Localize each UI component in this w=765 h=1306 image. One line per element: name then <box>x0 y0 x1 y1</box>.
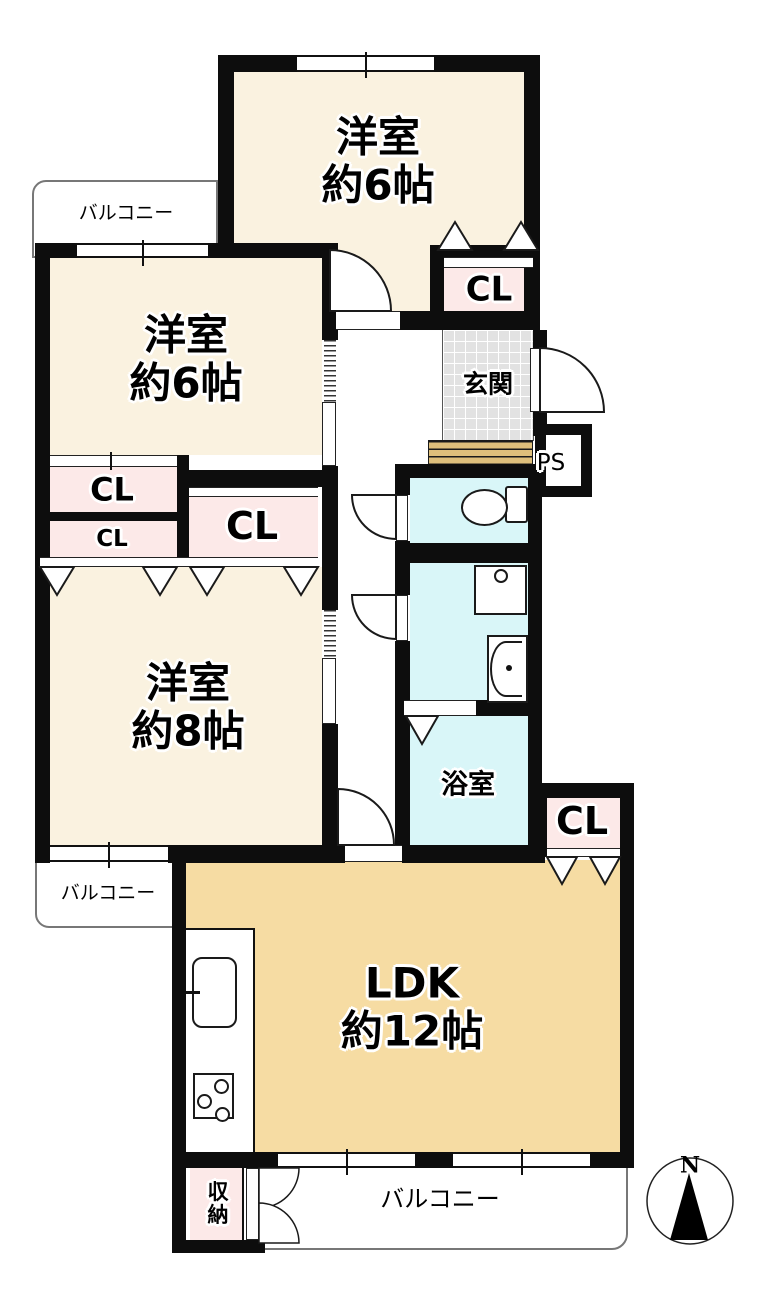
stove-burner-2 <box>214 1079 229 1094</box>
label-balcony-top-left: バルコニー <box>79 203 174 225</box>
label-storage: 収 納 <box>208 1181 229 1227</box>
wall-toilet-top <box>395 464 540 478</box>
washing-machine-dial <box>494 569 508 583</box>
window-left-room-balcony <box>77 243 208 258</box>
wall-band-a <box>35 845 50 863</box>
label-closet-top: CL <box>466 270 513 309</box>
label-bedroom-big: 洋室 約8帖 <box>131 660 244 757</box>
wall-closet-center-top <box>189 470 322 487</box>
door-arc-entrance <box>540 348 604 412</box>
storage-door-leaf <box>246 1168 259 1240</box>
wall-ldk-bottom-b <box>415 1152 453 1168</box>
closet-track-center <box>189 487 318 497</box>
stove-burner-3 <box>215 1107 230 1122</box>
window-top-room <box>297 55 434 72</box>
track-tick <box>110 452 112 470</box>
wall-corridor-left-b <box>322 466 338 610</box>
label-entrance: 玄関 <box>463 371 513 400</box>
wall-closet-ldk-left <box>537 783 547 857</box>
sliding-door-panel-left-room <box>322 402 336 466</box>
wall-entrance-right-a <box>533 330 547 348</box>
door-arc-ldk <box>338 789 394 845</box>
wall-top-room-right <box>524 55 540 330</box>
door-arc-toilet <box>352 495 396 539</box>
label-bedroom-top: 洋室 約6帖 <box>321 114 434 211</box>
window-tick <box>108 842 110 868</box>
window-tick <box>365 52 367 78</box>
label-balcony-mid-left: バルコニー <box>61 883 156 905</box>
kitchen-faucet <box>186 991 200 994</box>
wall-closet-top-left <box>430 245 444 330</box>
wall-band-b <box>168 845 345 863</box>
window-ldk-a <box>278 1152 415 1168</box>
closet-track-top <box>444 257 533 268</box>
closet-track-left-upper <box>50 455 177 467</box>
washroom-door-leaf <box>396 595 408 641</box>
doorway-top-room <box>336 311 400 330</box>
wall-ldk-bottom-c <box>590 1152 634 1168</box>
floor-plan: 洋室 約6帖 洋室 約6帖 洋室 約8帖 LDK 約12帖 玄関 浴室 収 納 … <box>0 0 765 1306</box>
wall-ldk-right <box>620 783 634 1168</box>
washroom-sink-drain <box>506 665 512 671</box>
window-tick <box>346 1149 348 1175</box>
toilet-tank <box>505 486 528 523</box>
window-tick <box>521 1149 523 1175</box>
sliding-door-panel-big-room <box>322 658 336 724</box>
wall-closet-top-top <box>430 245 540 257</box>
entrance-door-leaf <box>530 348 543 412</box>
wall-toilet-bottom <box>395 543 540 563</box>
toilet-bowl <box>461 489 508 526</box>
wall-corridor-right-c <box>395 641 410 860</box>
label-closet-ldk: CL <box>556 800 608 844</box>
window-ldk-b <box>453 1152 590 1168</box>
wall-corridor-right-b <box>395 541 410 595</box>
closet-track-row-bottom <box>40 557 318 567</box>
wall-bath-top-a <box>395 700 404 716</box>
label-closet-center: CL <box>226 505 278 549</box>
wall-closet-top-bottom <box>430 311 540 330</box>
label-balcony-bottom: バルコニー <box>380 1186 500 1214</box>
wall-corridor-right-a <box>395 464 410 495</box>
label-closet-left-upper: CL <box>90 472 134 509</box>
bath-door-track <box>404 700 476 716</box>
closet-track-ldk <box>547 848 620 857</box>
door-arc-washroom <box>352 595 396 639</box>
wall-nook-bottom <box>400 311 430 330</box>
wall-closet-left-mid <box>35 512 189 521</box>
label-bathroom: 浴室 <box>441 769 495 800</box>
wall-storage-bottom <box>172 1240 265 1253</box>
wall-ldk-bottom-a <box>172 1152 278 1168</box>
window-tick <box>142 240 144 266</box>
wall-outer-left <box>35 243 50 863</box>
wall-top-room-left <box>218 55 234 257</box>
wall-closet-divider <box>177 455 189 567</box>
doorway-corridor-ldk <box>345 845 402 862</box>
label-bedroom-left: 洋室 約6帖 <box>129 312 242 409</box>
label-closet-left-lower: CL <box>96 526 128 552</box>
compass-needle <box>670 1173 708 1240</box>
label-pipe-space: PS <box>537 450 565 476</box>
label-compass-north: N <box>680 1153 700 1178</box>
wall-band-c <box>402 845 545 863</box>
sliding-door-hatch-left-room <box>324 340 336 402</box>
toilet-door-leaf <box>396 495 408 541</box>
label-ldk: LDK 約12帖 <box>341 960 483 1057</box>
stove-burner-1 <box>197 1094 212 1109</box>
wall-ldk-left <box>172 845 186 1253</box>
window-big-room-balcony <box>50 845 168 862</box>
wall-corridor-left-c <box>322 724 338 860</box>
sliding-door-hatch-big-room <box>324 610 336 658</box>
